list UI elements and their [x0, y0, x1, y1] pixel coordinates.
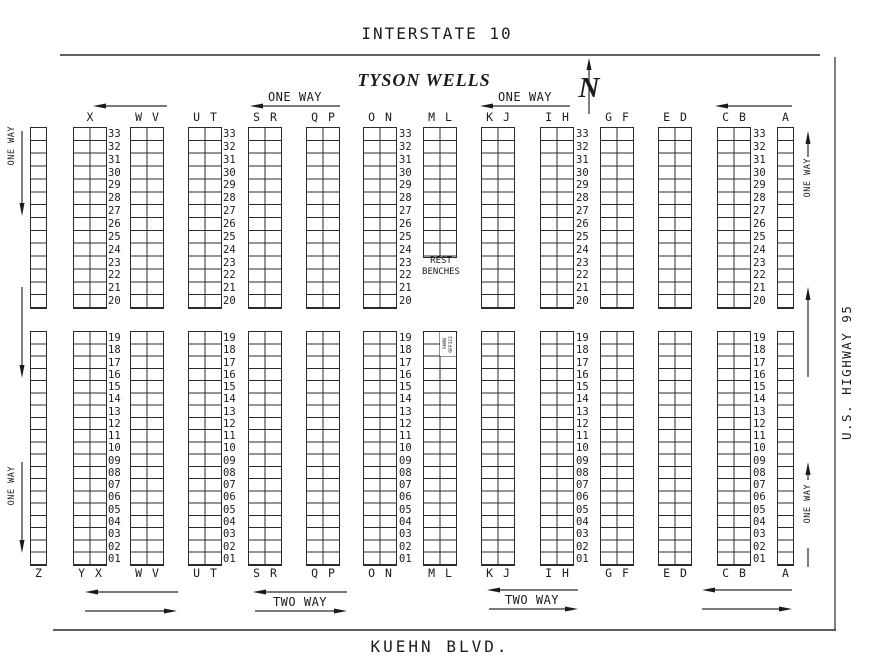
row-number: 11: [576, 430, 592, 442]
one-way-arrow-left-middle: [20, 287, 25, 378]
row-number: 22: [108, 269, 124, 282]
column-label-bottom-KJ: K J: [481, 567, 515, 580]
row-number: 27: [753, 205, 769, 218]
row-number: 13: [223, 406, 239, 418]
stall-grid-ED-top: [658, 127, 692, 309]
row-number: 17: [223, 357, 239, 369]
row-number: 14: [753, 393, 769, 405]
row-number: 02: [753, 541, 769, 553]
row-number: 07: [108, 479, 124, 491]
row-number: 25: [753, 231, 769, 244]
row-number: 25: [108, 231, 124, 244]
row-number: 13: [753, 406, 769, 418]
row-number: 01: [399, 553, 415, 565]
row-number: 21: [753, 282, 769, 295]
row-number: 12: [399, 418, 415, 430]
row-number: 23: [576, 257, 592, 270]
row-number: 03: [108, 528, 124, 540]
one-way-label-left-bottom: ONE WAY: [7, 466, 17, 505]
row-number: 01: [108, 553, 124, 565]
row-number: 22: [576, 269, 592, 282]
row-number: 24: [399, 244, 415, 257]
two-way-arrows-bottom-1: [85, 590, 178, 614]
row-number: 19: [108, 332, 124, 344]
column-label-bottom-UT: U T: [188, 567, 222, 580]
row-number: 24: [108, 244, 124, 257]
row-number: 17: [576, 357, 592, 369]
row-number: 09: [108, 455, 124, 467]
row-number: 10: [399, 442, 415, 454]
tyson-wells-site-map: ZXY XW VW VU TU TS RS RQ PQ PO NO NM LM …: [0, 0, 881, 668]
column-label-bottom-YX: Y X: [73, 567, 107, 580]
row-number: 19: [576, 332, 592, 344]
row-number: 32: [223, 141, 239, 154]
row-number: 07: [753, 479, 769, 491]
row-number: 27: [399, 205, 415, 218]
row-number: 32: [576, 141, 592, 154]
column-label-top-WV: W V: [130, 111, 164, 124]
row-number: 14: [108, 393, 124, 405]
row-number: 19: [399, 332, 415, 344]
row-number: 03: [399, 528, 415, 540]
row-number: 33: [223, 128, 239, 141]
row-number: 15: [399, 381, 415, 393]
row-number: 09: [576, 455, 592, 467]
row-number: 30: [576, 167, 592, 180]
row-number: 27: [223, 205, 239, 218]
row-number: 16: [108, 369, 124, 381]
row-number: 02: [576, 541, 592, 553]
row-number: 31: [399, 154, 415, 167]
row-number: 02: [108, 541, 124, 553]
row-number: 26: [576, 218, 592, 231]
row-number: 02: [399, 541, 415, 553]
row-number: 32: [399, 141, 415, 154]
one-way-label-right-bottom: ONE WAY: [803, 484, 813, 523]
road-label-interstate-10: INTERSTATE 10: [352, 24, 522, 43]
column-label-top-KJ: K J: [481, 111, 515, 124]
row-number: 10: [576, 442, 592, 454]
column-label-top-QP: Q P: [306, 111, 340, 124]
row-number: 21: [399, 282, 415, 295]
stall-grid-SR-top: [248, 127, 282, 309]
row-number: 21: [223, 282, 239, 295]
stall-grid-YX-top: [73, 127, 107, 309]
column-label-top-YX: X: [73, 111, 107, 124]
row-number: 23: [223, 257, 239, 270]
row-number: 24: [576, 244, 592, 257]
row-number: 04: [576, 516, 592, 528]
row-number: 18: [223, 344, 239, 356]
row-number: 28: [108, 192, 124, 205]
stall-grid-GF-top: [600, 127, 634, 309]
row-number: 28: [399, 192, 415, 205]
two-way-label-1: TWO WAY: [265, 595, 335, 609]
row-number: 25: [399, 231, 415, 244]
stall-grid-Z-top: [30, 127, 47, 309]
row-number: 21: [576, 282, 592, 295]
column-label-bottom-ON: O N: [363, 567, 397, 580]
row-number: 18: [576, 344, 592, 356]
row-number: 13: [399, 406, 415, 418]
row-number: 22: [753, 269, 769, 282]
row-number: 12: [108, 418, 124, 430]
row-number: 31: [108, 154, 124, 167]
row-number: 19: [753, 332, 769, 344]
row-number: 20: [399, 295, 415, 308]
row-number: 03: [223, 528, 239, 540]
row-number: 12: [223, 418, 239, 430]
column-label-bottom-ED: E D: [658, 567, 692, 580]
row-number: 16: [223, 369, 239, 381]
row-number: 25: [223, 231, 239, 244]
row-number: 30: [753, 167, 769, 180]
stall-grid-KJ-top: [481, 127, 515, 309]
row-number: 22: [223, 269, 239, 282]
row-number: 32: [108, 141, 124, 154]
column-label-bottom-GF: G F: [600, 567, 634, 580]
row-numbers-bottom-4: 19181716151413121110090807060504030201: [576, 332, 592, 565]
row-number: 29: [108, 179, 124, 192]
row-number: 18: [753, 344, 769, 356]
one-way-arrow-top-3: [480, 104, 570, 109]
row-number: 17: [399, 357, 415, 369]
stall-grid-GF-bottom: [600, 331, 634, 566]
stall-grid-KJ-bottom: [481, 331, 515, 566]
row-number: 13: [576, 406, 592, 418]
row-number: 08: [223, 467, 239, 479]
row-number: 16: [576, 369, 592, 381]
one-way-arrow-right-middle: [806, 287, 811, 377]
show-office-line2: OFFICE: [449, 336, 454, 353]
row-number: 26: [108, 218, 124, 231]
row-numbers-top-5: 3332313029282726252423222120: [753, 128, 769, 308]
stall-grid-QP-bottom: [306, 331, 340, 566]
row-number: 10: [223, 442, 239, 454]
stall-grid-QP-top: [306, 127, 340, 309]
row-number: 03: [753, 528, 769, 540]
row-number: 16: [753, 369, 769, 381]
row-number: 05: [753, 504, 769, 516]
row-numbers-top-1: 3332313029282726252423222120: [108, 128, 124, 308]
rest-benches-label: REST BENCHES: [405, 256, 477, 278]
row-number: 33: [576, 128, 592, 141]
one-way-arrow-right-top: [806, 131, 811, 157]
row-number: 10: [108, 442, 124, 454]
row-numbers-bottom-3: 19181716151413121110090807060504030201: [399, 332, 415, 565]
stall-grid-ML-top: [423, 127, 457, 258]
row-numbers-bottom-2: 19181716151413121110090807060504030201: [223, 332, 239, 565]
row-number: 12: [753, 418, 769, 430]
row-number: 10: [753, 442, 769, 454]
row-number: 26: [753, 218, 769, 231]
row-number: 30: [108, 167, 124, 180]
row-number: 18: [399, 344, 415, 356]
row-number: 09: [399, 455, 415, 467]
row-number: 31: [753, 154, 769, 167]
row-number: 06: [108, 491, 124, 503]
row-number: 04: [223, 516, 239, 528]
row-number: 20: [223, 295, 239, 308]
row-number: 14: [223, 393, 239, 405]
column-label-bottom-QP: Q P: [306, 567, 340, 580]
row-number: 01: [753, 553, 769, 565]
show-office-label: SHOW OFFICE: [440, 332, 456, 356]
column-label-bottom-ML: M L: [423, 567, 457, 580]
row-number: 25: [576, 231, 592, 244]
row-number: 09: [223, 455, 239, 467]
column-label-bottom-CB: C B: [717, 567, 751, 580]
row-number: 07: [576, 479, 592, 491]
row-number: 15: [576, 381, 592, 393]
row-number: 24: [753, 244, 769, 257]
column-label-bottom-A: A: [777, 567, 794, 580]
row-number: 07: [399, 479, 415, 491]
row-number: 26: [399, 218, 415, 231]
row-number: 29: [753, 179, 769, 192]
row-numbers-top-3: 3332313029282726252423222120: [399, 128, 415, 308]
stall-grid-ED-bottom: [658, 331, 692, 566]
column-label-top-ON: O N: [363, 111, 397, 124]
stall-grid-WV-bottom: [130, 331, 164, 566]
row-number: 19: [223, 332, 239, 344]
road-label-kuehn-blvd: KUEHN BLVD.: [355, 637, 525, 656]
row-number: 31: [223, 154, 239, 167]
row-number: 30: [399, 167, 415, 180]
row-number: 05: [108, 504, 124, 516]
row-number: 23: [108, 257, 124, 270]
row-number: 03: [576, 528, 592, 540]
row-number: 06: [399, 491, 415, 503]
stall-grid-UT-bottom: [188, 331, 222, 566]
two-way-arrows-bottom-4: [702, 588, 792, 612]
stall-grid-ON-bottom: [363, 331, 397, 566]
stall-grid-ML-bottom: [423, 331, 457, 566]
one-way-arrow-top-4: [715, 104, 792, 109]
row-number: 04: [399, 516, 415, 528]
row-number: 05: [223, 504, 239, 516]
row-number: 02: [223, 541, 239, 553]
row-number: 29: [399, 179, 415, 192]
row-number: 33: [108, 128, 124, 141]
row-number: 14: [399, 393, 415, 405]
column-label-top-SR: S R: [248, 111, 282, 124]
row-number: 11: [108, 430, 124, 442]
row-numbers-bottom-1: 19181716151413121110090807060504030201: [108, 332, 124, 565]
row-number: 33: [399, 128, 415, 141]
row-number: 30: [223, 167, 239, 180]
row-numbers-top-4: 3332313029282726252423222120: [576, 128, 592, 308]
column-label-bottom-Z: Z: [30, 567, 47, 580]
row-number: 08: [753, 467, 769, 479]
one-way-arrow-top-1: [93, 104, 167, 109]
row-number: 24: [223, 244, 239, 257]
stall-grid-YX-bottom: [73, 331, 107, 566]
stall-grid-UT-top: [188, 127, 222, 309]
column-label-bottom-SR: S R: [248, 567, 282, 580]
row-numbers-bottom-5: 19181716151413121110090807060504030201: [753, 332, 769, 565]
stall-grid-CB-top: [717, 127, 751, 309]
row-number: 33: [753, 128, 769, 141]
row-number: 08: [108, 467, 124, 479]
row-number: 16: [399, 369, 415, 381]
one-way-label-right-top: ONE WAY: [803, 158, 813, 197]
row-number: 20: [753, 295, 769, 308]
column-label-top-A: A: [777, 111, 794, 124]
rest-benches-line1: REST: [405, 256, 477, 267]
row-number: 15: [108, 381, 124, 393]
row-number: 06: [223, 491, 239, 503]
row-number: 28: [576, 192, 592, 205]
row-number: 08: [399, 467, 415, 479]
row-number: 06: [576, 491, 592, 503]
road-label-us-highway-95: U.S. HIGHWAY 95: [839, 262, 854, 440]
column-label-top-ED: E D: [658, 111, 692, 124]
column-label-bottom-IH: I H: [540, 567, 574, 580]
row-number: 17: [753, 357, 769, 369]
column-label-bottom-WV: W V: [130, 567, 164, 580]
row-number: 05: [399, 504, 415, 516]
row-number: 31: [576, 154, 592, 167]
row-number: 23: [753, 257, 769, 270]
row-number: 04: [753, 516, 769, 528]
rest-benches-line2: BENCHES: [405, 267, 477, 278]
row-number: 13: [108, 406, 124, 418]
row-number: 20: [576, 295, 592, 308]
map-title: TYSON WELLS: [324, 70, 524, 91]
one-way-arrow-left-top: [20, 131, 25, 216]
row-number: 26: [223, 218, 239, 231]
two-way-label-2: TWO WAY: [497, 593, 567, 607]
row-number: 29: [223, 179, 239, 192]
row-number: 32: [753, 141, 769, 154]
row-number: 09: [753, 455, 769, 467]
one-way-arrow-left-bottom: [20, 462, 25, 553]
row-number: 01: [576, 553, 592, 565]
row-number: 11: [399, 430, 415, 442]
one-way-label-left-top: ONE WAY: [7, 126, 17, 165]
row-number: 20: [108, 295, 124, 308]
row-number: 07: [223, 479, 239, 491]
column-label-top-UT: U T: [188, 111, 222, 124]
one-way-arrow-top-2: [250, 104, 340, 109]
row-number: 04: [108, 516, 124, 528]
row-number: 06: [753, 491, 769, 503]
row-number: 28: [753, 192, 769, 205]
row-number: 11: [753, 430, 769, 442]
row-number: 14: [576, 393, 592, 405]
row-number: 17: [108, 357, 124, 369]
column-label-top-IH: I H: [540, 111, 574, 124]
stall-grid-A-top: [777, 127, 794, 309]
row-number: 01: [223, 553, 239, 565]
stall-grid-CB-bottom: [717, 331, 751, 566]
row-number: 05: [576, 504, 592, 516]
stall-grid-WV-top: [130, 127, 164, 309]
row-number: 27: [108, 205, 124, 218]
row-number: 29: [576, 179, 592, 192]
row-number: 15: [223, 381, 239, 393]
row-number: 12: [576, 418, 592, 430]
row-number: 11: [223, 430, 239, 442]
stall-grid-IH-bottom: [540, 331, 574, 566]
column-label-top-GF: G F: [600, 111, 634, 124]
stall-grid-A-bottom: [777, 331, 794, 566]
column-label-top-CB: C B: [717, 111, 751, 124]
row-number: 15: [753, 381, 769, 393]
stall-grid-SR-bottom: [248, 331, 282, 566]
row-number: 18: [108, 344, 124, 356]
column-label-top-ML: M L: [423, 111, 457, 124]
one-way-label-top-1: ONE WAY: [260, 90, 330, 104]
row-numbers-top-2: 3332313029282726252423222120: [223, 128, 239, 308]
row-number: 08: [576, 467, 592, 479]
row-number: 28: [223, 192, 239, 205]
compass-north-label: N: [573, 72, 605, 105]
stall-grid-IH-top: [540, 127, 574, 309]
row-number: 27: [576, 205, 592, 218]
stall-grid-ON-top: [363, 127, 397, 309]
stall-grid-Z-bottom: [30, 331, 47, 566]
show-office-line1: SHOW: [443, 338, 448, 349]
one-way-label-top-2: ONE WAY: [490, 90, 560, 104]
row-number: 21: [108, 282, 124, 295]
